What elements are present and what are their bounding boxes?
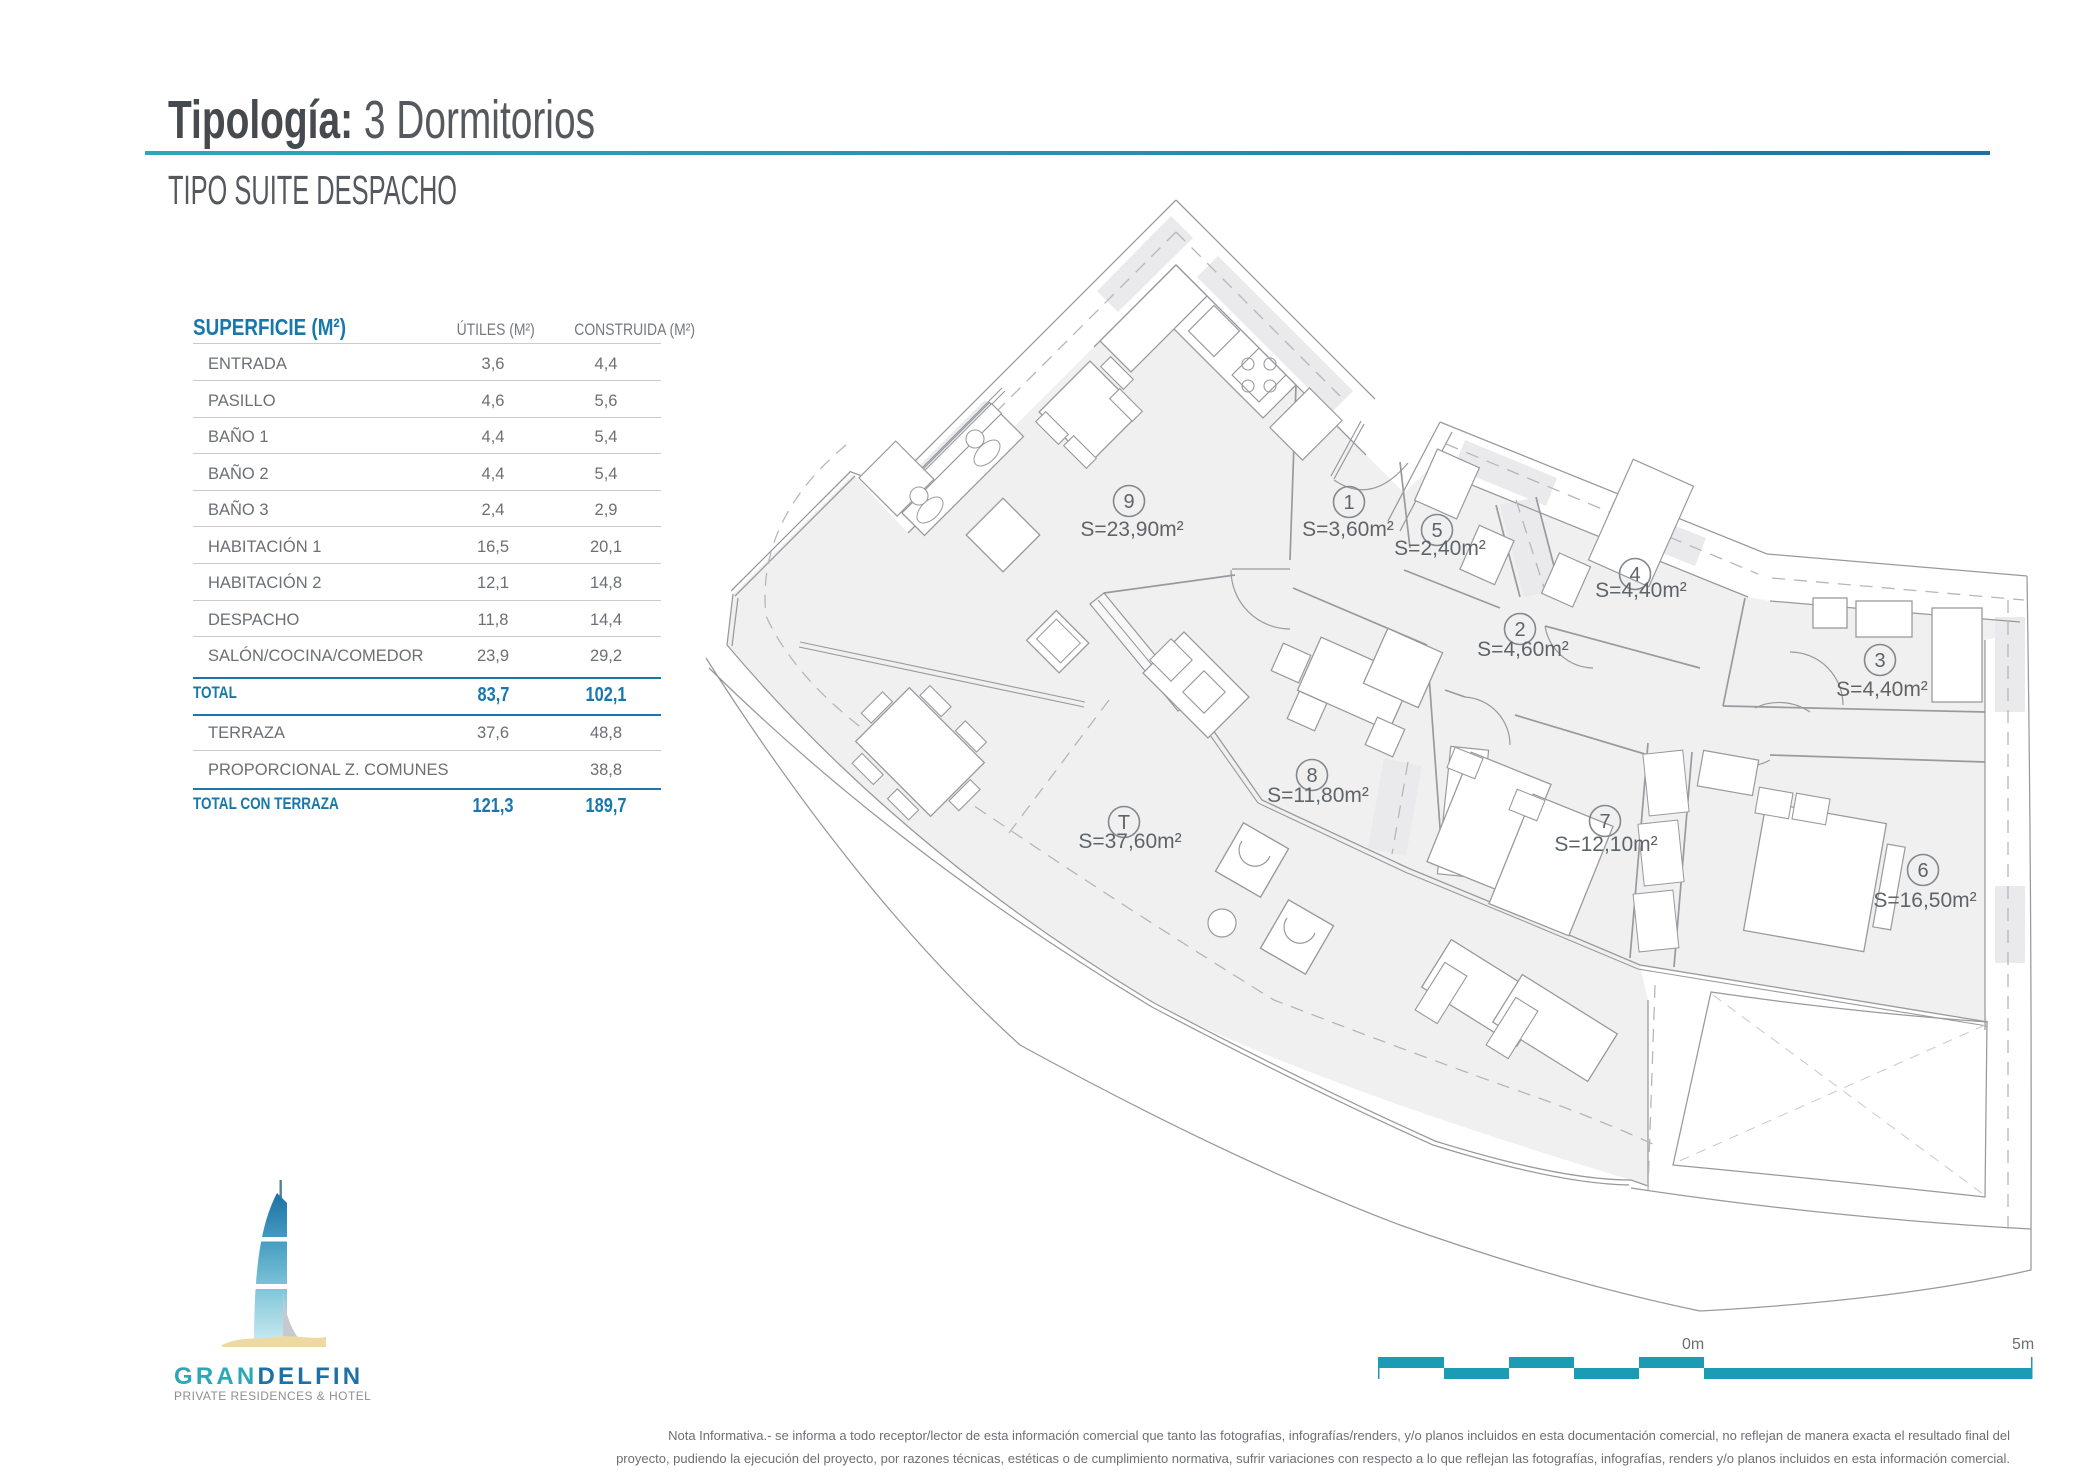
svg-text:S=16,50m²: S=16,50m²: [1873, 889, 1976, 912]
svg-text:7: 7: [1599, 811, 1610, 833]
svg-text:3: 3: [1874, 650, 1885, 672]
svg-text:S=4,40m²: S=4,40m²: [1595, 579, 1687, 602]
svg-text:9: 9: [1123, 491, 1134, 513]
svg-text:S=4,40m²: S=4,40m²: [1836, 678, 1928, 701]
svg-text:S=2,40m²: S=2,40m²: [1394, 537, 1486, 560]
svg-text:S=12,10m²: S=12,10m²: [1554, 833, 1657, 856]
svg-text:S=37,60m²: S=37,60m²: [1078, 830, 1181, 853]
svg-text:S=4,60m²: S=4,60m²: [1477, 638, 1569, 661]
svg-text:S=23,90m²: S=23,90m²: [1080, 518, 1183, 541]
svg-text:6: 6: [1917, 860, 1928, 882]
svg-text:S=3,60m²: S=3,60m²: [1302, 518, 1394, 541]
svg-text:S=11,80m²: S=11,80m²: [1267, 784, 1369, 807]
svg-text:1: 1: [1343, 492, 1354, 514]
